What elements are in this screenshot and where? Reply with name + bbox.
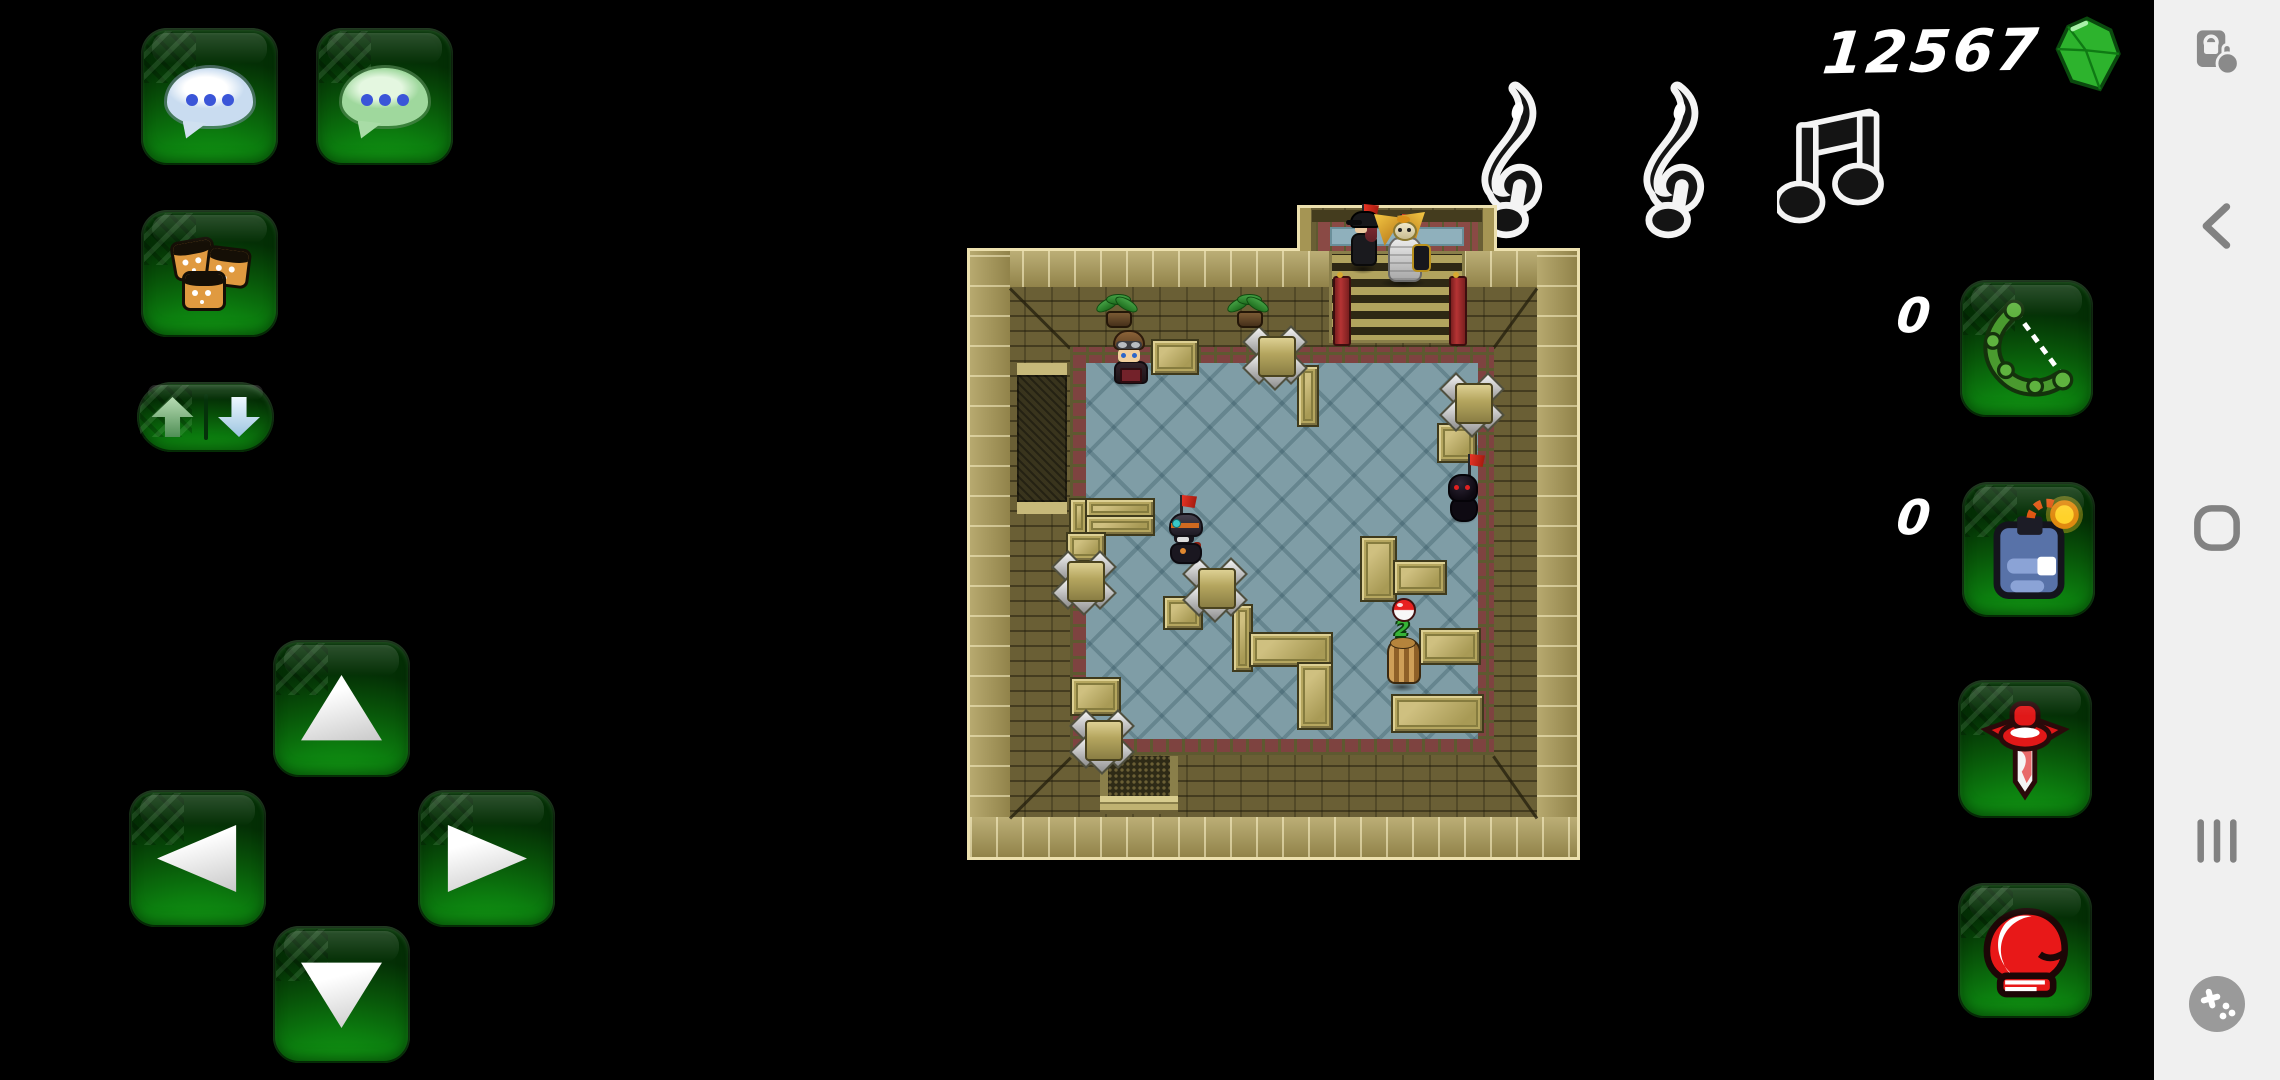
dpad-up-button[interactable] [273, 640, 410, 777]
player-faces-icon [170, 239, 250, 309]
bow-icon [1975, 297, 2079, 401]
recents-button-icon[interactable] [2194, 816, 2240, 866]
chat-button[interactable] [141, 28, 278, 165]
dpad-left-button[interactable] [129, 790, 266, 927]
red-vial-icon [1973, 697, 2077, 801]
triangle-right-icon [441, 821, 533, 897]
character-ninja_dark [1446, 472, 1478, 524]
character-ninja_masked [1167, 512, 1203, 566]
game-booster-button[interactable] [2189, 976, 2245, 1032]
wall-left [970, 251, 1010, 857]
arrow-down-icon [218, 397, 260, 437]
triangle-down-icon [296, 957, 388, 1033]
back-button-icon[interactable] [2194, 202, 2240, 250]
dpad-right-button[interactable] [418, 790, 555, 927]
bomb-item-button[interactable] [1962, 482, 2095, 617]
spike-block [1192, 565, 1238, 611]
wall-top [970, 251, 1577, 287]
left-door [1017, 363, 1067, 514]
gem-icon [2050, 16, 2124, 94]
crate [1360, 536, 1397, 602]
game-map: 2 [967, 200, 1580, 860]
spike-block [1061, 558, 1107, 604]
triangle-up-icon [296, 671, 388, 747]
bow-item-button[interactable] [1960, 280, 2093, 417]
boxing-glove-icon [1972, 898, 2078, 1004]
bomb-count: 0 [1877, 489, 1953, 546]
divider [204, 394, 208, 440]
potion-item-button[interactable] [1958, 680, 2092, 818]
treble-clef-icon [1625, 80, 1725, 242]
potted-plant [1229, 294, 1267, 328]
red-banner [1449, 276, 1467, 346]
guild-chat-button[interactable] [316, 28, 453, 165]
eighth-notes-icon [1777, 104, 1885, 228]
chat-bubble-icon [167, 68, 253, 126]
spike-block [1079, 717, 1125, 763]
triangle-left-icon [152, 821, 244, 897]
android-nav-bar [2154, 0, 2280, 1080]
glove-item-button[interactable] [1958, 883, 2092, 1018]
wall-right [1537, 251, 1577, 857]
crate [1393, 560, 1447, 595]
gamepad-icon [2189, 976, 2245, 1032]
dpad-down-button[interactable] [273, 926, 410, 1063]
character-winged [1377, 212, 1429, 288]
swap-item-button[interactable] [137, 382, 274, 452]
spike-block [1449, 380, 1495, 426]
crate [1070, 677, 1121, 716]
character-mummy: 2 [1384, 598, 1420, 692]
spike-block [1252, 333, 1298, 379]
bow-count: 0 [1877, 287, 1953, 344]
red-banner [1333, 276, 1351, 346]
wall-bottom [970, 817, 1577, 857]
green-chat-bubble-icon [342, 68, 428, 126]
screen-pin-icon[interactable] [2191, 28, 2243, 80]
game-screen: 12567 0 [0, 0, 2280, 1080]
emotes-button[interactable] [141, 210, 278, 337]
character-aviator [1112, 330, 1146, 388]
arrow-up-icon [152, 397, 194, 437]
crate [1297, 662, 1333, 730]
crate [1151, 339, 1199, 375]
crate [1391, 694, 1484, 733]
bomb-icon [1975, 496, 2083, 604]
potted-plant [1098, 294, 1136, 328]
crate [1419, 628, 1481, 665]
score-value: 12567 [1756, 16, 2044, 89]
character-capgirl [1348, 208, 1378, 274]
home-button-icon[interactable] [2193, 504, 2241, 552]
